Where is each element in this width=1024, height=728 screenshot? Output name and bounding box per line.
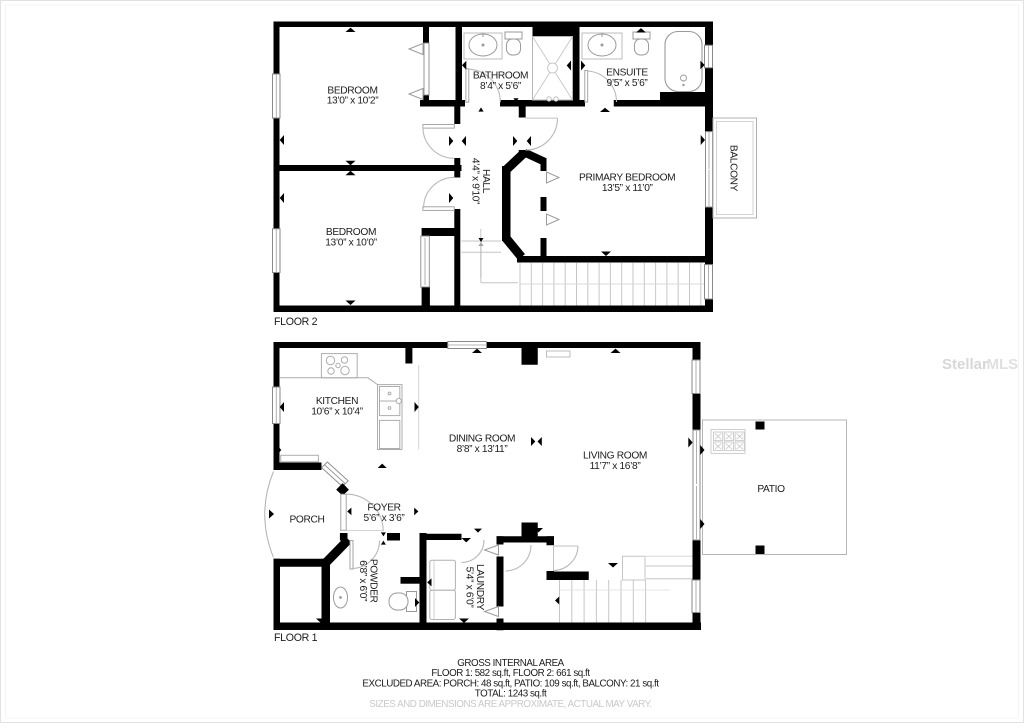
svg-text:BEDROOM: BEDROOM	[327, 85, 377, 96]
svg-text:PORCH: PORCH	[289, 515, 324, 526]
svg-text:9’5” x 5’6”: 9’5” x 5’6”	[607, 78, 649, 89]
svg-text:13’0” x 10’2”: 13’0” x 10’2”	[327, 96, 379, 107]
svg-text:HALL: HALL	[480, 169, 491, 194]
svg-text:8’4” x 5’6”: 8’4” x 5’6”	[480, 81, 522, 92]
svg-text:PRIMARY BEDROOM: PRIMARY BEDROOM	[579, 173, 675, 184]
svg-text:6’8” x 6’0”: 6’8” x 6’0”	[357, 560, 368, 602]
svg-text:BATHROOM: BATHROOM	[473, 71, 528, 82]
svg-text:11’7” x 16’8”: 11’7” x 16’8”	[590, 461, 642, 472]
svg-text:LIVING ROOM: LIVING ROOM	[583, 451, 647, 462]
svg-text:PATIO: PATIO	[757, 484, 785, 495]
svg-text:LAUNDRY: LAUNDRY	[474, 564, 485, 611]
svg-text:MLS: MLS	[987, 356, 1019, 373]
svg-text:Stellar: Stellar	[942, 356, 988, 373]
svg-text:FOYER: FOYER	[367, 503, 400, 514]
svg-text:4’4” x 9’10”: 4’4” x 9’10”	[469, 158, 480, 205]
svg-text:10’6” x 10’4”: 10’6” x 10’4”	[311, 407, 363, 418]
svg-text:5’6” x 3’6”: 5’6” x 3’6”	[364, 513, 406, 524]
svg-text:BEDROOM: BEDROOM	[326, 227, 376, 238]
svg-text:BALCONY: BALCONY	[728, 145, 739, 192]
svg-text:5’4” x 6’0”: 5’4” x 6’0”	[463, 567, 474, 609]
svg-text:ENSUITE: ENSUITE	[606, 67, 648, 78]
svg-text:8’8” x 13’11”: 8’8” x 13’11”	[457, 444, 509, 455]
svg-text:13’5” x 11’0”: 13’5” x 11’0”	[602, 183, 654, 194]
svg-text:TOTAL: 1243 sq.ft: TOTAL: 1243 sq.ft	[475, 689, 547, 700]
svg-text:POWDER: POWDER	[367, 559, 378, 603]
svg-text:FLOOR 1: FLOOR 1	[274, 632, 318, 644]
svg-text:DINING ROOM: DINING ROOM	[449, 434, 515, 445]
svg-text:KITCHEN: KITCHEN	[316, 396, 358, 407]
svg-text:13’0” x 10’0”: 13’0” x 10’0”	[325, 238, 377, 249]
svg-text:SIZES AND DIMENSIONS ARE APPRO: SIZES AND DIMENSIONS ARE APPROXIMATE, AC…	[369, 699, 651, 710]
svg-text:FLOOR 2: FLOOR 2	[274, 316, 318, 328]
